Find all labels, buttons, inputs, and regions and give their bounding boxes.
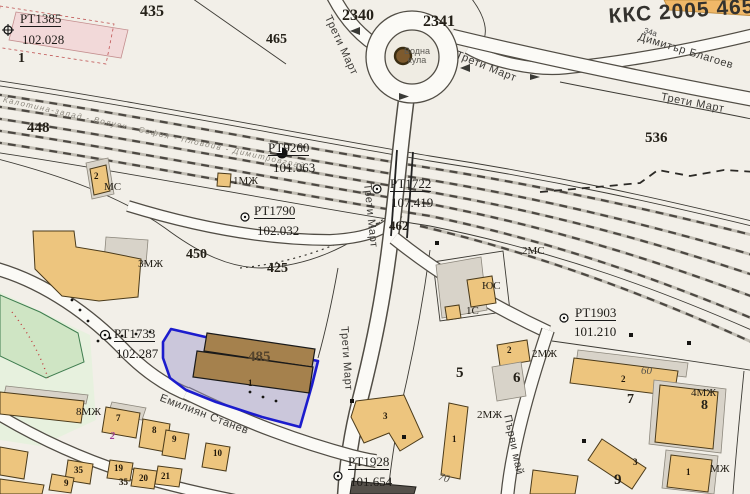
elevation-pt1385: 102.028 (22, 33, 64, 46)
parcel-label-465: 465 (266, 33, 287, 47)
block-label-7: 7 (627, 393, 634, 407)
parcel-label-536: 536 (645, 131, 668, 146)
parcel-label-60: 60 (641, 366, 652, 377)
building-number-c19: 19 (114, 464, 123, 473)
one-way-arrow-se (530, 74, 540, 80)
building-number-l-3: 3 (383, 412, 388, 421)
building-number-diag-3: 3 (633, 458, 638, 467)
elevation-pt1903: 101.210 (574, 325, 616, 338)
survey-point-pt1722: РТ1722 (390, 177, 431, 192)
building-type-8mzh: 8МЖ (76, 407, 101, 418)
building-number-magenta-2: 2 (110, 432, 115, 442)
block-label-8: 8 (701, 399, 708, 413)
block-label-9: 9 (614, 473, 622, 488)
parcel-label-450: 450 (186, 248, 207, 262)
water-tower-line2: кула (394, 56, 440, 65)
parcel-label-448: 448 (27, 121, 50, 136)
survey-point-pt1385: РТ1385 (20, 12, 61, 27)
parcel-label-2341: 2341 (423, 14, 455, 30)
building-number-c21: 21 (161, 472, 170, 481)
building-number-big-2: 2 (621, 375, 626, 384)
survey-point-pt9260: РТ9260 (268, 141, 309, 156)
parcel-label-462: 462 (389, 219, 409, 232)
building-number-c9b: 9 (64, 479, 69, 488)
survey-symbol-pt1722 (373, 185, 381, 193)
parcel-label-485: 485 (248, 350, 271, 365)
building-type-2ms: 2МС (522, 246, 545, 257)
building-type-2mzh-b: 2МЖ (477, 410, 502, 421)
building-number-c20: 20 (139, 474, 148, 483)
building-number-c7: 7 (116, 414, 121, 423)
building-type-mzh: МЖ (710, 464, 730, 475)
parcel-label-1: 1 (18, 52, 25, 66)
elevation-pt1722: 107.419 (391, 196, 433, 209)
parcel-label-2340: 2340 (342, 8, 374, 24)
parcel-label-435: 435 (140, 4, 164, 20)
building-type-4mzh: 4МЖ (691, 388, 716, 399)
building-type-1s: 1С (466, 306, 479, 317)
parcel-label-425: 425 (267, 262, 288, 276)
building-type-1mzh: 1МЖ (233, 176, 258, 187)
building-number-c10: 10 (213, 449, 222, 458)
survey-point-pt1928: РТ1928 (348, 455, 389, 470)
building-number-ms-2: 2 (94, 172, 99, 181)
building-type-2mzh-a: 2МЖ (532, 349, 557, 360)
building-type-ms: МС (104, 182, 121, 193)
building-number-c8: 8 (152, 426, 157, 435)
survey-symbol-pt1928 (334, 472, 342, 480)
elevation-pt1928: 101.654 (350, 475, 392, 488)
building-number-c9: 9 (172, 435, 177, 444)
cadastral-map-canvas[interactable]: ККС 2005 4657 РТ1385 102.028 РТ9260 101.… (0, 0, 750, 494)
building-number-br-1: 1 (686, 468, 691, 477)
building-number-brown-1: 1 (248, 379, 253, 388)
elevation-pt1733: 102.287 (116, 347, 158, 360)
elevation-pt1790: 102.032 (257, 224, 299, 237)
building-number-c35a: 35 (74, 466, 83, 475)
block-label-6: 6 (513, 371, 521, 386)
survey-point-pt1790: РТ1790 (254, 204, 295, 219)
survey-point-pt1903: РТ1903 (575, 306, 616, 321)
building-number-small-2: 2 (507, 346, 512, 355)
survey-point-pt1733: РТ1733 (114, 327, 155, 342)
survey-symbol-pt1903 (560, 314, 568, 322)
building-type-yus: ЮС (482, 281, 501, 292)
building-number-tall-1: 1 (452, 435, 457, 444)
building-type-3mzh: 3МЖ (138, 259, 163, 270)
block-label-5: 5 (456, 366, 464, 381)
survey-symbol-pt1790 (241, 213, 249, 221)
survey-symbol-pt1733 (101, 331, 110, 340)
building-number-c35b: 35 (119, 478, 128, 487)
water-tower-label: Водна кула (394, 47, 440, 65)
